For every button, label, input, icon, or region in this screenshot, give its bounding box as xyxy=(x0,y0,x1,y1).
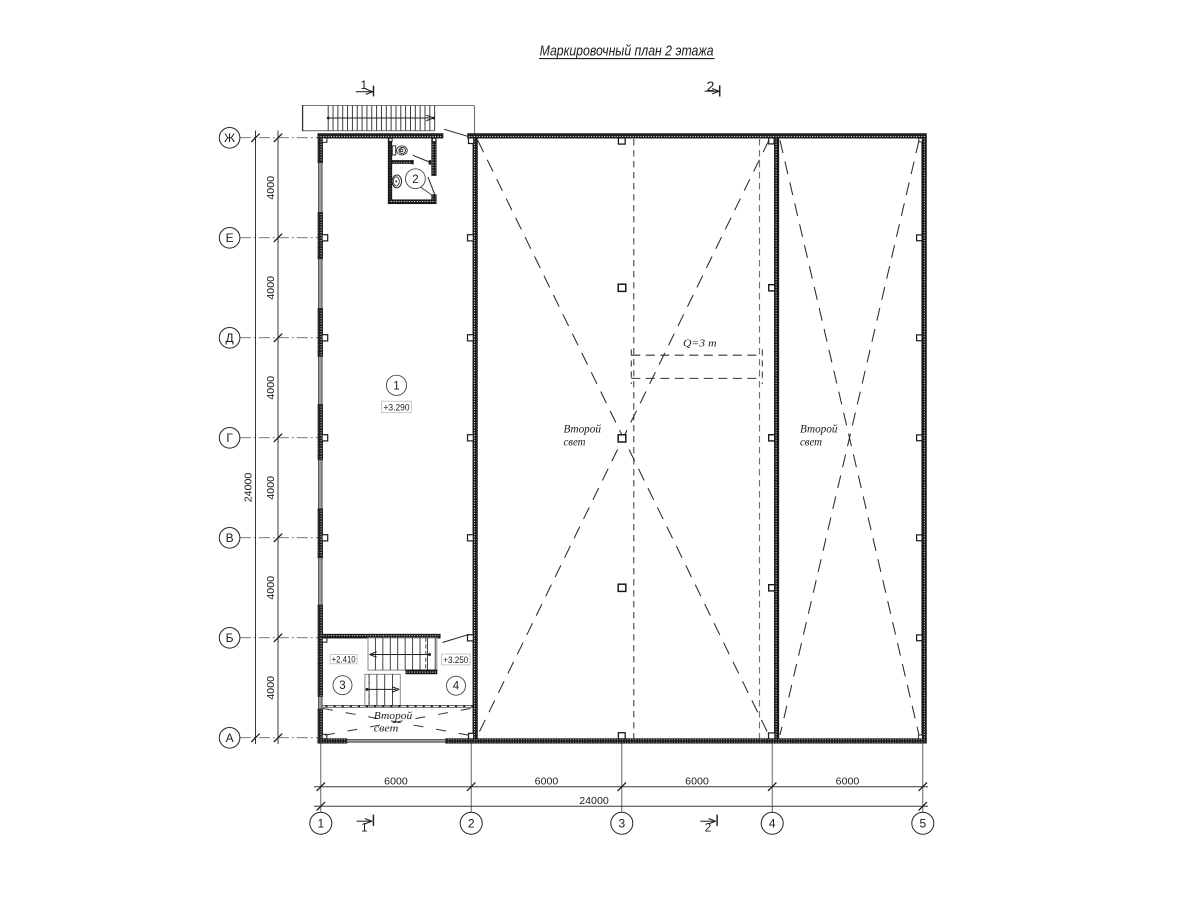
svg-text:Ж: Ж xyxy=(224,131,235,145)
svg-text:А: А xyxy=(226,731,234,745)
svg-text:Второй: Второй xyxy=(800,423,838,436)
svg-text:24000: 24000 xyxy=(243,473,255,503)
svg-text:Маркировочный план 2 этажа: Маркировочный план 2 этажа xyxy=(540,44,714,60)
svg-text:Б: Б xyxy=(226,631,234,645)
svg-text:6000: 6000 xyxy=(384,775,408,787)
svg-text:Второй: Второй xyxy=(374,711,413,722)
svg-text:6000: 6000 xyxy=(685,775,709,787)
svg-text:4000: 4000 xyxy=(265,576,277,600)
svg-text:Д: Д xyxy=(226,331,234,345)
svg-text:4000: 4000 xyxy=(265,676,277,700)
svg-text:1: 1 xyxy=(317,817,324,831)
svg-text:свет: свет xyxy=(800,436,822,448)
svg-text:6000: 6000 xyxy=(836,775,860,787)
svg-text:В: В xyxy=(226,531,234,545)
svg-text:Второй: Второй xyxy=(564,423,602,436)
svg-text:1: 1 xyxy=(360,78,367,92)
svg-text:5: 5 xyxy=(919,817,926,831)
svg-text:1: 1 xyxy=(393,380,399,392)
svg-text:+2.410: +2.410 xyxy=(332,654,356,664)
svg-text:2: 2 xyxy=(412,174,418,186)
svg-text:Е: Е xyxy=(226,231,234,245)
svg-text:+3.290: +3.290 xyxy=(384,402,410,412)
svg-text:Г: Г xyxy=(226,431,233,445)
svg-text:4000: 4000 xyxy=(265,376,277,400)
svg-text:свет: свет xyxy=(374,723,399,734)
svg-text:1: 1 xyxy=(361,823,367,835)
svg-text:3: 3 xyxy=(618,817,625,831)
svg-text:свет: свет xyxy=(564,436,586,448)
svg-text:+3.250: +3.250 xyxy=(443,655,468,665)
svg-text:3: 3 xyxy=(339,680,345,692)
svg-text:6000: 6000 xyxy=(535,775,559,787)
svg-text:4000: 4000 xyxy=(265,476,277,500)
svg-text:24000: 24000 xyxy=(579,795,609,807)
svg-text:4: 4 xyxy=(453,681,460,693)
svg-text:2: 2 xyxy=(705,823,711,835)
svg-text:Q=3 т: Q=3 т xyxy=(683,337,717,349)
svg-text:4: 4 xyxy=(769,817,776,831)
svg-text:4000: 4000 xyxy=(265,276,277,300)
svg-text:4000: 4000 xyxy=(265,176,277,200)
svg-text:2: 2 xyxy=(468,817,475,831)
